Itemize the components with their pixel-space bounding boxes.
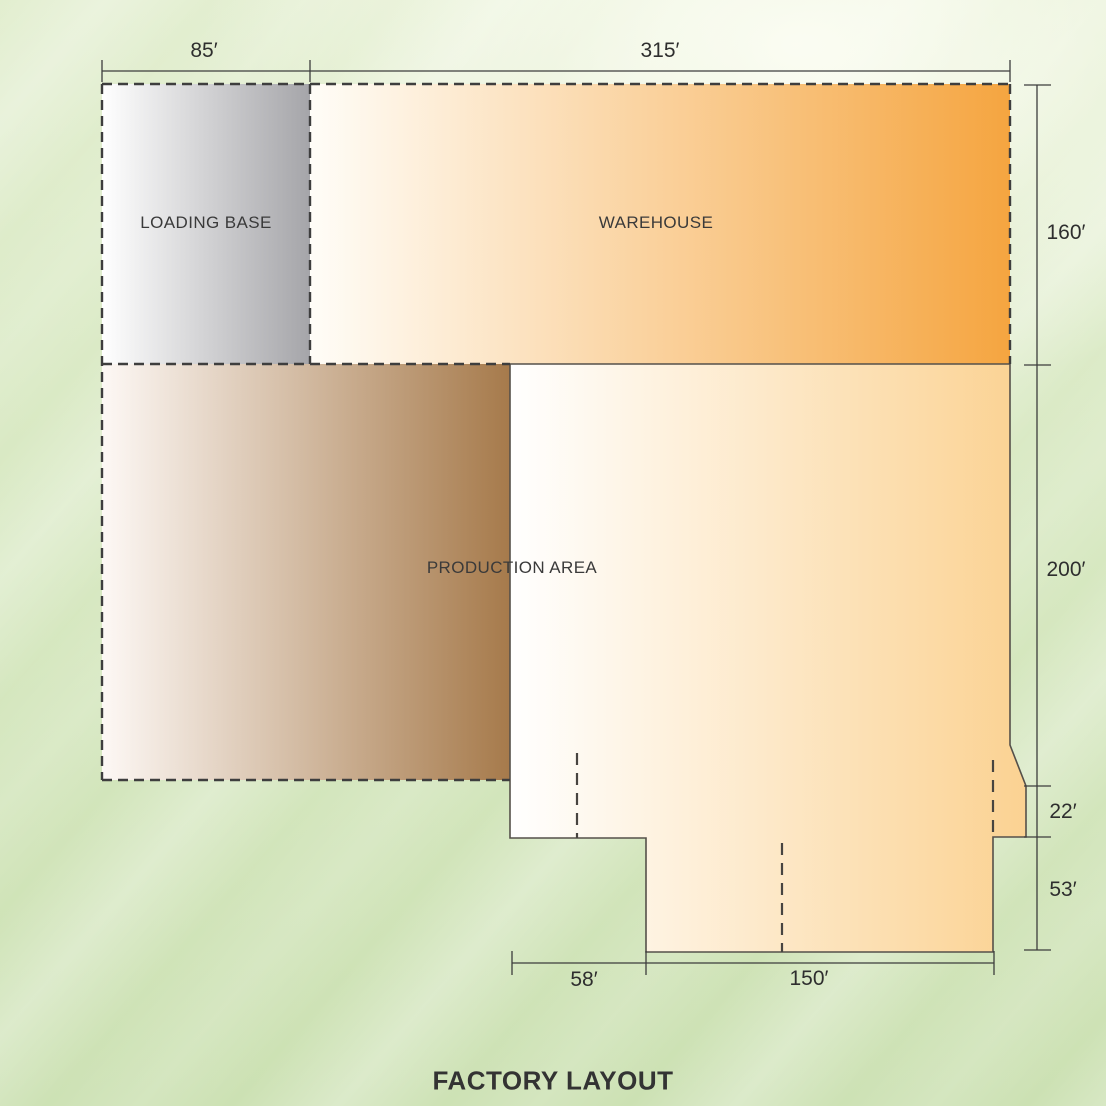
plan-drawing: [0, 0, 1106, 1106]
dimension-label-bay-height: 53′: [1049, 878, 1076, 902]
dimension-label-loading-base-width: 85′: [190, 39, 217, 63]
dimension-label-notch-height: 22′: [1049, 800, 1076, 824]
dimension-label-warehouse-height: 160′: [1047, 221, 1086, 245]
production-area-extension: [510, 364, 1026, 952]
warehouse-label: WAREHOUSE: [599, 213, 713, 233]
dimension-label-bay-offset-width: 58′: [570, 968, 597, 992]
factory-layout-diagram: LOADING BASE WAREHOUSE PRODUCTION AREA 8…: [0, 0, 1106, 1106]
dimension-label-production-height: 200′: [1047, 558, 1086, 582]
loading-base-label: LOADING BASE: [140, 213, 271, 233]
dimension-label-warehouse-width: 315′: [641, 39, 680, 63]
production-area-label: PRODUCTION AREA: [427, 558, 597, 578]
dimension-label-bay-width: 150′: [790, 967, 829, 991]
diagram-title: FACTORY LAYOUT: [432, 1066, 673, 1097]
